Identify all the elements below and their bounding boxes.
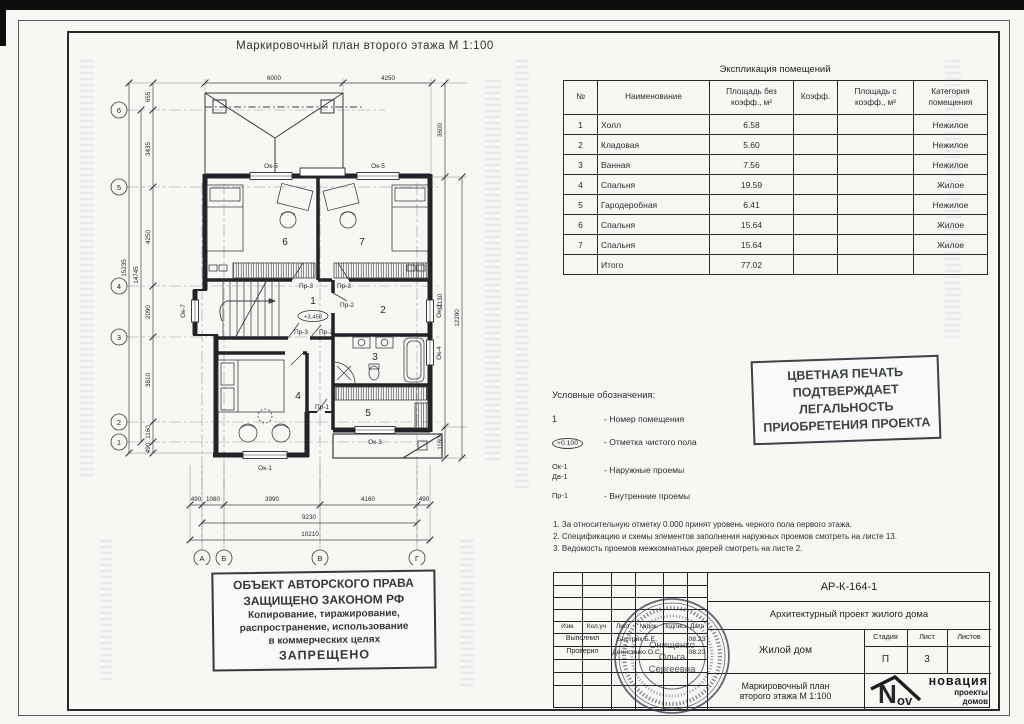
door-label-pr1: Пр-1 <box>315 404 329 411</box>
table-row-total: Итого77.02 <box>564 255 988 275</box>
seal-patronymic: Сергеевна <box>649 664 697 675</box>
scanner-edge-artifact <box>0 0 1024 10</box>
room-number-2: 2 <box>380 305 386 316</box>
dim-left-1160: 1160 <box>145 425 152 439</box>
notes: 1. За относительную отметку 0.000 принят… <box>553 519 985 555</box>
cell-category: Жилое <box>914 235 988 255</box>
table-row: 5Гародеробная6.41Нежилое <box>564 195 988 215</box>
cell-num: 1 <box>564 115 598 135</box>
role-proveril: Проверил <box>554 646 611 659</box>
cell-area: 15.64 <box>710 235 794 255</box>
window-label-ok1: Ок-1 <box>258 465 272 472</box>
explication-title: Экспликация помещений <box>563 64 987 75</box>
legend-title: Условные обозначения: <box>552 390 782 400</box>
dim-left-3810: 3810 <box>145 373 152 388</box>
scanned-drawing-sheet: Маркировочный план второго этажа М 1:100 <box>0 0 1024 724</box>
cell-name: Холл <box>598 115 710 135</box>
door-label-pr3: Пр-3 <box>294 329 308 336</box>
table-row: 4Спальня19.59Жилое <box>564 175 988 195</box>
dim-left-3435: 3435 <box>145 142 152 157</box>
cell-category: Нежилое <box>914 155 988 175</box>
dim-bottom-9230: 9230 <box>302 514 317 521</box>
col-header-name: Наименование <box>598 81 710 115</box>
dim-left-655: 655 <box>145 91 152 102</box>
copyright-stamp: ОБЪЕКТ АВТОРСКОГО ПРАВА ЗАЩИЩЕНО ЗАКОНОМ… <box>211 569 436 671</box>
dim-left-2090: 2090 <box>145 305 152 320</box>
stage-header: Стадия <box>864 629 907 646</box>
sheets-header: Листов <box>947 629 991 646</box>
elevation-mark: +3.450 <box>304 315 322 321</box>
legend-symbol-dv: Дв-1 <box>552 472 604 482</box>
col-koluch: Кол.уч <box>582 621 611 633</box>
window-label-ok5: Ок-5 <box>264 163 278 170</box>
dim-bottom-1080: 1080 <box>206 496 221 503</box>
col-header-coef: Коэфф. <box>794 81 838 115</box>
door-label-pr2: Пр-2 <box>319 329 333 336</box>
legend-item-elevation: +0.100 - Отметка чистого пола <box>552 437 782 449</box>
legend-item-exterior-openings: Ок-1 Дв-1 - Наружные проемы <box>552 462 782 481</box>
room-number-3: 3 <box>372 352 378 363</box>
cell-name: Спальня <box>598 215 710 235</box>
document-code: АР-К-164-1 <box>707 573 991 601</box>
table-row: 3Ванная7.56Нежилое <box>564 155 988 175</box>
seal-firstname: Ольга <box>659 652 686 663</box>
room-number-6: 6 <box>282 237 288 248</box>
window-label-ok3: Ок-3 <box>368 439 382 446</box>
legend-symbol-pr: Пр-1 <box>552 491 604 500</box>
elevation-oval-symbol: +0.100 <box>552 438 583 449</box>
color-print-legality-stamp: ЦВЕТНАЯ ПЕЧАТЬ ПОДТВЕРЖДАЕТ ЛЕГАЛЬНОСТЬ … <box>751 355 942 446</box>
window-label-ok5: Ок-5 <box>371 163 385 170</box>
cell-category: Нежилое <box>914 135 988 155</box>
note-line: 3. Ведомость проемов межкомнатных дверей… <box>553 543 985 555</box>
dim-right-12290: 12290 <box>454 309 461 327</box>
sheet-header: Лист <box>907 629 947 646</box>
dim-right-3600: 3600 <box>437 123 444 138</box>
logo-sub2: домов <box>924 698 988 707</box>
axis-bubble-v: В <box>317 554 322 563</box>
logo-letter-n: N <box>878 679 897 708</box>
axis-bubble-4: 4 <box>117 282 121 291</box>
door-label-pr3: Пр-3 <box>337 283 351 290</box>
window-label-ok4: Ок-4 <box>436 346 443 360</box>
note-line: 1. За относительную отметку 0.000 принят… <box>553 519 985 531</box>
stage-value: П <box>864 646 907 673</box>
axis-bubble-5: 5 <box>117 183 121 192</box>
dim-left-15235: 15235 <box>121 259 128 277</box>
legend-symbol: 1 <box>552 414 604 424</box>
legend: Условные обозначения: 1 - Номер помещени… <box>552 390 782 514</box>
stamp-line: ЗАПРЕЩЕНО <box>214 646 434 665</box>
cell-name: Ванная <box>598 155 710 175</box>
cell-num: 4 <box>564 175 598 195</box>
axis-bubble-3: 3 <box>117 333 121 342</box>
round-seal: Онищенко Ольга Сергеевна <box>612 596 732 716</box>
dim-bottom-3990: 3990 <box>265 496 280 503</box>
cell-num: 7 <box>564 235 598 255</box>
table-row: 2Кладовая5.60Нежилое <box>564 135 988 155</box>
explication-table: № Наименование Площадь без коэфф., м² Ко… <box>563 80 988 275</box>
col-izm: Изм. <box>554 621 582 633</box>
door-label-pr3: Пр-3 <box>299 283 313 290</box>
cell-name: Кладовая <box>598 135 710 155</box>
col-header-category: Категория помещения <box>914 81 988 115</box>
dim-right-1160: 1160 <box>437 436 444 450</box>
table-row: 1Холл6.58Нежилое <box>564 115 988 135</box>
scanner-edge-artifact <box>0 0 6 46</box>
logo-house-mark: N ov <box>868 674 924 708</box>
dim-left-490: 490 <box>145 442 152 453</box>
dim-right-11130: 11130 <box>437 293 444 310</box>
cell-area: 6.41 <box>710 195 794 215</box>
cell-area: 77.02 <box>710 255 794 275</box>
sheets-total <box>947 646 991 673</box>
dim-bottom-490: 490 <box>419 496 430 503</box>
cell-name: Спальня <box>598 175 710 195</box>
sheet-title-line2: второго этажа М 1:100 <box>740 691 832 701</box>
col-header-area-wo: Площадь без коэфф., м² <box>710 81 794 115</box>
legend-text: - Наружные проемы <box>604 465 684 475</box>
cell-area: 19.59 <box>710 175 794 195</box>
axis-bubble-1: 1 <box>117 438 121 447</box>
axis-bubble-b: Б <box>222 554 227 563</box>
cell-name: Итого <box>598 255 710 275</box>
cell-num: 6 <box>564 215 598 235</box>
axis-bubble-a: А <box>199 554 204 563</box>
dim-bottom-4160: 4160 <box>361 496 376 503</box>
dim-top-6000: 6000 <box>267 75 282 82</box>
col-header-area-w: Площадь с коэфф., м² <box>838 81 914 115</box>
cell-category: Жилое <box>914 175 988 195</box>
legend-item-room-number: 1 - Номер помещения <box>552 414 782 424</box>
cell-area: 5.60 <box>710 135 794 155</box>
axis-bubble-g: Г <box>415 554 419 563</box>
axis-bubble-2: 2 <box>117 418 121 427</box>
sheet-title-line1: Маркировочный план <box>742 681 830 691</box>
col-header-num: № <box>564 81 598 115</box>
project-name: Архитектурный проект жилого дома <box>707 601 991 629</box>
dim-left-4250: 4250 <box>145 230 152 245</box>
company-logo: N ov новация проекты домов <box>868 674 988 708</box>
cell-num: 2 <box>564 135 598 155</box>
dim-bottom-490: 490 <box>191 496 202 503</box>
table-row: 6Спальня15.64Жилое <box>564 215 988 235</box>
legend-text: - Номер помещения <box>604 414 684 424</box>
axis-bubble-6: 6 <box>117 106 121 115</box>
floor-plan-drawing: 1 2 3 4 5 6 7 +3.450 Ок-5 Ок-5 Ок-7 Ок-2… <box>85 35 555 565</box>
legend-text: - Отметка чистого пола <box>604 437 697 447</box>
legend-text: - Внутренние проемы <box>604 491 690 501</box>
cell-category: Жилое <box>914 215 988 235</box>
note-line: 2. Спецификацию и схемы элементов заполн… <box>553 531 985 543</box>
room-number-1: 1 <box>310 296 316 307</box>
cell-area: 7.56 <box>710 155 794 175</box>
legend-symbol-ok: Ок-1 <box>552 462 604 472</box>
cell-category: Нежилое <box>914 195 988 215</box>
logo-letters-ov: ov <box>897 693 913 708</box>
dim-top-4250: 4250 <box>381 75 396 82</box>
dim-left-14745: 14745 <box>133 266 140 284</box>
cell-area: 6.58 <box>710 115 794 135</box>
cell-category: Нежилое <box>914 115 988 135</box>
room-number-7: 7 <box>359 237 365 248</box>
table-row: 7Спальня15.64Жилое <box>564 235 988 255</box>
room-number-4: 4 <box>295 391 301 402</box>
dim-bottom-10210: 10210 <box>301 531 319 538</box>
room-number-5: 5 <box>365 408 371 419</box>
cell-area: 15.64 <box>710 215 794 235</box>
sheet-number: 3 <box>907 646 947 673</box>
seal-surname: Онищенко <box>649 640 695 651</box>
role-vypolnil: Выполнил <box>554 633 611 646</box>
cell-num: 3 <box>564 155 598 175</box>
door-label-pr2: Пр-2 <box>340 302 354 309</box>
logo-brand: новация <box>924 675 988 689</box>
cell-num: 5 <box>564 195 598 215</box>
cell-name: Спальня <box>598 235 710 255</box>
legend-item-interior-openings: Пр-1 - Внутренние проемы <box>552 491 782 501</box>
window-label-ok7: Ок-7 <box>180 304 187 318</box>
cell-name: Гародеробная <box>598 195 710 215</box>
